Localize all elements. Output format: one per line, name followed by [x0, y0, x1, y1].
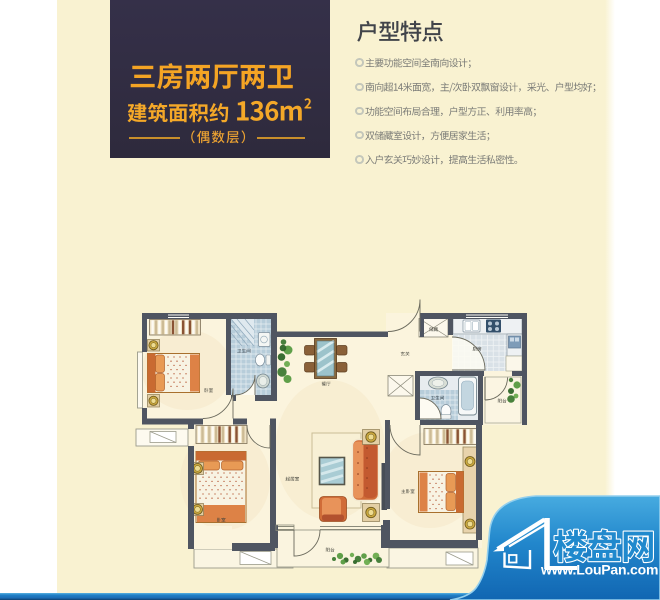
svg-text:www.LouPan.com: www.LouPan.com: [540, 562, 658, 578]
